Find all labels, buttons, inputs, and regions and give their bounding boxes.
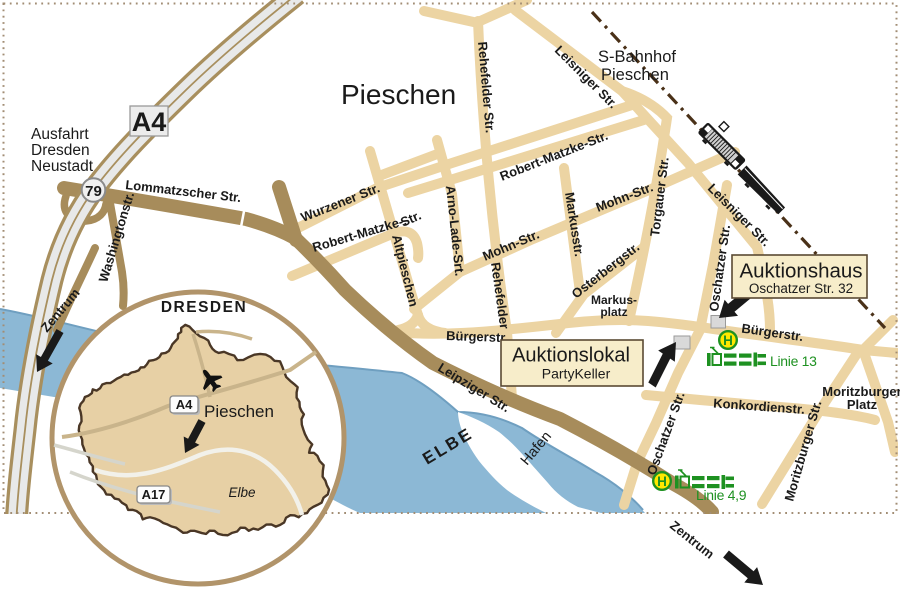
svg-text:A4: A4 [176, 397, 193, 412]
svg-text:H: H [657, 474, 667, 489]
svg-text:Neustadt: Neustadt [31, 158, 94, 175]
svg-text:Platz: Platz [847, 397, 878, 412]
svg-text:Linie 13: Linie 13 [770, 353, 817, 369]
svg-text:S-Bahnhof: S-Bahnhof [598, 48, 676, 66]
svg-text:Linie 4,9: Linie 4,9 [696, 487, 747, 503]
svg-text:Str.: Str. [398, 208, 423, 230]
svg-text:Arno-Lade-Srt.: Arno-Lade-Srt. [443, 185, 467, 277]
svg-text:A4: A4 [132, 107, 167, 137]
svg-text:Wurzener Str.: Wurzener Str. [299, 180, 382, 225]
svg-text:Konkordienstr.: Konkordienstr. [713, 396, 806, 417]
svg-text:PartyKeller: PartyKeller [542, 366, 611, 382]
svg-text:Pieschen: Pieschen [601, 66, 669, 84]
svg-text:Pieschen: Pieschen [204, 402, 274, 421]
svg-text:Ausfahrt: Ausfahrt [31, 126, 89, 143]
svg-text:DRESDEN: DRESDEN [161, 299, 247, 316]
svg-text:A17: A17 [142, 487, 166, 502]
svg-text:Pieschen: Pieschen [341, 79, 456, 110]
svg-text:Auktionshaus: Auktionshaus [739, 260, 862, 283]
svg-text:Washingtonstr.: Washingtonstr. [96, 190, 138, 284]
svg-text:Rehefelder: Rehefelder [488, 261, 512, 330]
svg-text:H: H [723, 333, 733, 348]
svg-text:Mohn-Str.: Mohn-Str. [594, 179, 655, 214]
svg-text:Elbe: Elbe [228, 485, 255, 500]
svg-text:Oschatzer Str. 32: Oschatzer Str. 32 [749, 281, 853, 296]
svg-text:Bürgerstr.: Bürgerstr. [446, 328, 509, 345]
svg-text:Dresden: Dresden [31, 142, 90, 159]
svg-text:79: 79 [85, 183, 102, 200]
svg-text:Zentrum: Zentrum [667, 518, 717, 562]
svg-text:platz: platz [600, 305, 627, 319]
svg-text:Auktionslokal: Auktionslokal [512, 345, 630, 367]
